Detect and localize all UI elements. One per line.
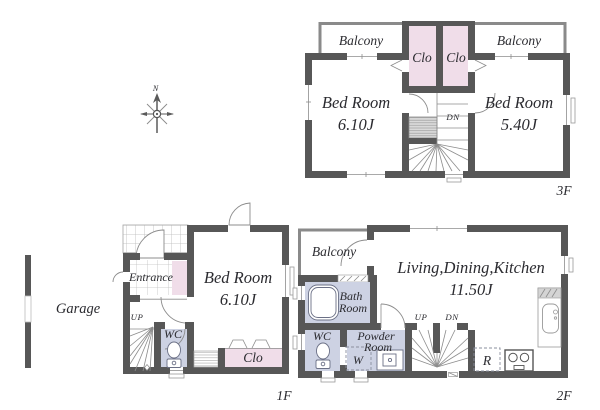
stair-bottom-marker	[447, 371, 459, 378]
bedroom-right-size: 5.40J	[501, 115, 538, 134]
closet-left-label: Clo	[412, 50, 432, 65]
door-arc-icon	[409, 94, 428, 113]
washing-machine-label: W	[353, 353, 364, 367]
floor-label-3f: 3F	[556, 183, 573, 198]
bedroom-left-name: Bed Room	[322, 93, 390, 112]
ldk-size: 11.50J	[449, 280, 493, 299]
balcony-label: Balcony	[312, 244, 356, 259]
hanger-icon	[252, 340, 270, 348]
door-arc-icon	[381, 304, 405, 328]
closet-right-label: Clo	[446, 50, 466, 65]
stairs-up-label: UP	[415, 312, 428, 322]
bathtub-icon	[309, 285, 339, 320]
floor-plan-3f: Balcony Balcony Clo Clo Bed Room 6.10J B…	[305, 21, 575, 198]
bedroom-right-name: Bed Room	[485, 93, 553, 112]
compass-north-label: N	[152, 84, 159, 93]
bifold-door-icon	[475, 60, 486, 71]
bedroom-left-size: 6.10J	[338, 115, 375, 134]
floor-label-1f: 1F	[277, 388, 293, 403]
powder-room-label-line2: Room	[363, 340, 392, 354]
ldk-name: Living,Dining,Kitchen	[396, 258, 545, 277]
balcony-left-label: Balcony	[339, 33, 383, 48]
stair-landing	[409, 117, 437, 138]
floor-label-2f: 2F	[557, 388, 573, 403]
bedroom-size: 6.10J	[220, 290, 257, 309]
toilet-label: WC	[313, 329, 332, 343]
kitchen-counter	[538, 288, 561, 347]
entrance-label: Entrance	[128, 270, 174, 284]
toilet-icon	[167, 342, 181, 368]
bath-window-icon	[338, 275, 368, 282]
door-arc-icon	[161, 297, 187, 323]
toilet-icon	[316, 343, 330, 369]
compass-rose: N	[140, 84, 174, 133]
door-arc-icon	[229, 203, 250, 225]
bedroom-name: Bed Room	[204, 268, 272, 287]
balcony-right-label: Balcony	[497, 33, 541, 48]
stairs-down-label: DN	[445, 112, 460, 122]
stairs-down-label: DN	[444, 312, 459, 322]
hanger-icon	[229, 340, 247, 348]
refrigerator-label: R	[482, 353, 492, 368]
kitchen-sink-icon	[543, 304, 559, 333]
stair-treads-1f	[130, 327, 154, 371]
floor-plan-drawing: N	[0, 0, 600, 410]
garage-wall	[25, 255, 31, 296]
garage-label: Garage	[56, 301, 101, 317]
entrance-step	[172, 261, 187, 295]
side-door-arc-icon	[113, 272, 123, 282]
stairs-up-label: UP	[131, 312, 144, 322]
floor-plan-page: N	[0, 0, 600, 410]
garage-opening	[25, 296, 31, 322]
floor-plan-2f: Balcony Living,Dining,Kitchen 11.50J Bat…	[293, 225, 573, 403]
toilet-label: WC	[164, 327, 183, 341]
closet-label: Clo	[243, 350, 263, 365]
bathroom-label-line2: Room	[338, 301, 367, 315]
floor-plan-1f: Garage Entrance Bed Room 6.10J UP WC Clo…	[25, 203, 294, 403]
deck-strip	[194, 351, 218, 367]
stove-icon	[505, 350, 533, 371]
bifold-door-icon	[391, 60, 402, 71]
